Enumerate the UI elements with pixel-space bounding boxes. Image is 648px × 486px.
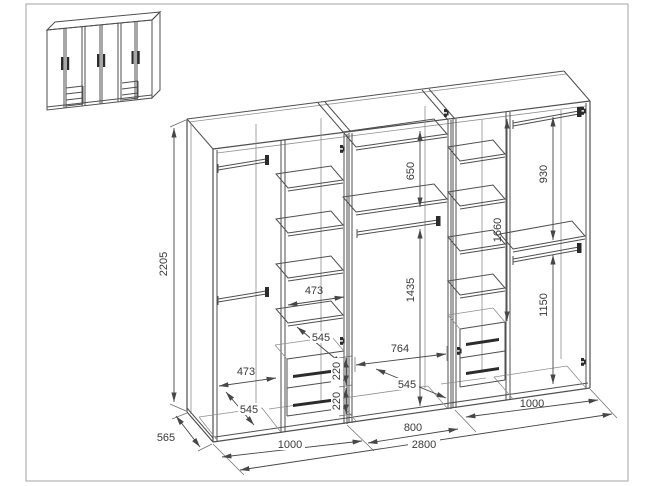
front-view-thumbnail [47,12,160,110]
drawer-handle [466,338,499,346]
dim-right-bottom-hang: 1150 [538,293,550,317]
dim-right-top-hang: 930 [538,165,550,183]
dim-height: 2205 [158,252,170,276]
hinge-icon [457,347,462,355]
rail-middle [357,216,441,238]
dim-middle-width: 764 [391,343,409,355]
dim-width-right: 1000 [520,398,544,410]
dim-depth: 565 [157,432,175,444]
dim-middle-depth: 545 [398,379,416,391]
dim-right-shelf-height: 1660 [492,218,504,242]
dim-left-drawer2-height: 220 [331,392,343,410]
drawer-handle [466,367,499,375]
thumb-door-handle [67,57,69,70]
rail-right-top [513,107,582,129]
carcass-structure [187,71,590,442]
wardrobe-technical-drawing: 2205 565 1000 800 1000 2800 650 1435 [0,0,648,486]
dim-left-shelf-width: 473 [305,285,323,297]
dim-left-shelf-depth: 545 [312,332,330,344]
thumb-top-face [47,12,160,30]
dim-width-middle: 800 [404,422,422,434]
thumb-door-handle [138,51,140,64]
rail-left-middle [218,287,269,305]
drawers-right-section [448,308,505,387]
hinge-marks [340,107,586,366]
rail-left-top [218,155,269,173]
dimension-lines: 2205 565 1000 800 1000 2800 650 1435 [157,117,617,475]
dim-left-hang-width: 473 [237,366,255,378]
thumb-door-handle [132,51,134,64]
thumb-door-handle [97,54,99,67]
thumb-side-face [152,12,160,98]
hinge-icon [581,107,586,115]
dim-width-total: 2800 [412,439,436,451]
thumb-door-handle [61,57,63,70]
thumb-door-handle [103,54,105,67]
dim-width-left: 1000 [278,439,302,451]
dim-left-hang-depth: 545 [240,404,258,416]
hinge-icon [581,358,586,366]
dim-middle-shelf-spacing: 650 [405,162,417,180]
dim-left-drawer1-height: 220 [331,362,343,380]
dim-middle-hang-height: 1435 [405,278,417,302]
